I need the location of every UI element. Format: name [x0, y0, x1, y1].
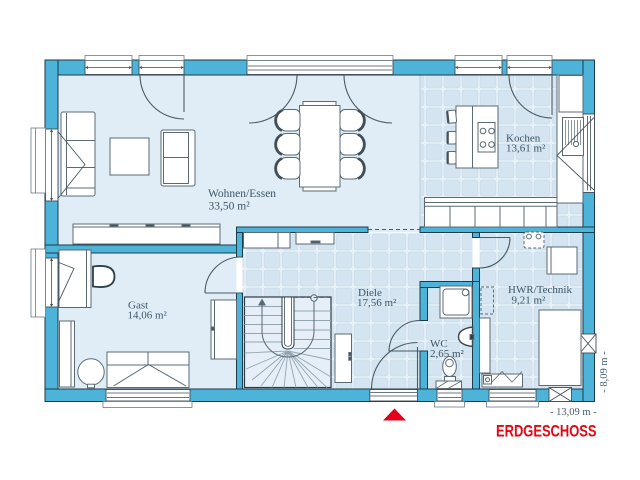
- svg-text:14,06 m²: 14,06 m²: [128, 310, 168, 322]
- svg-text:33,50 m²: 33,50 m²: [209, 201, 251, 213]
- svg-text:17,56 m²: 17,56 m²: [357, 297, 397, 309]
- svg-text:- 13,09 m -: - 13,09 m -: [550, 407, 597, 418]
- svg-text:- 8,09 m -: - 8,09 m -: [599, 351, 610, 393]
- svg-text:13,61 m²: 13,61 m²: [506, 143, 546, 155]
- svg-text:2,65 m²: 2,65 m²: [430, 348, 465, 360]
- svg-text:Wohnen/Essen: Wohnen/Essen: [208, 188, 276, 200]
- svg-text:ERDGESCHOSS: ERDGESCHOSS: [496, 423, 597, 441]
- svg-text:9,21 m²: 9,21 m²: [512, 295, 547, 307]
